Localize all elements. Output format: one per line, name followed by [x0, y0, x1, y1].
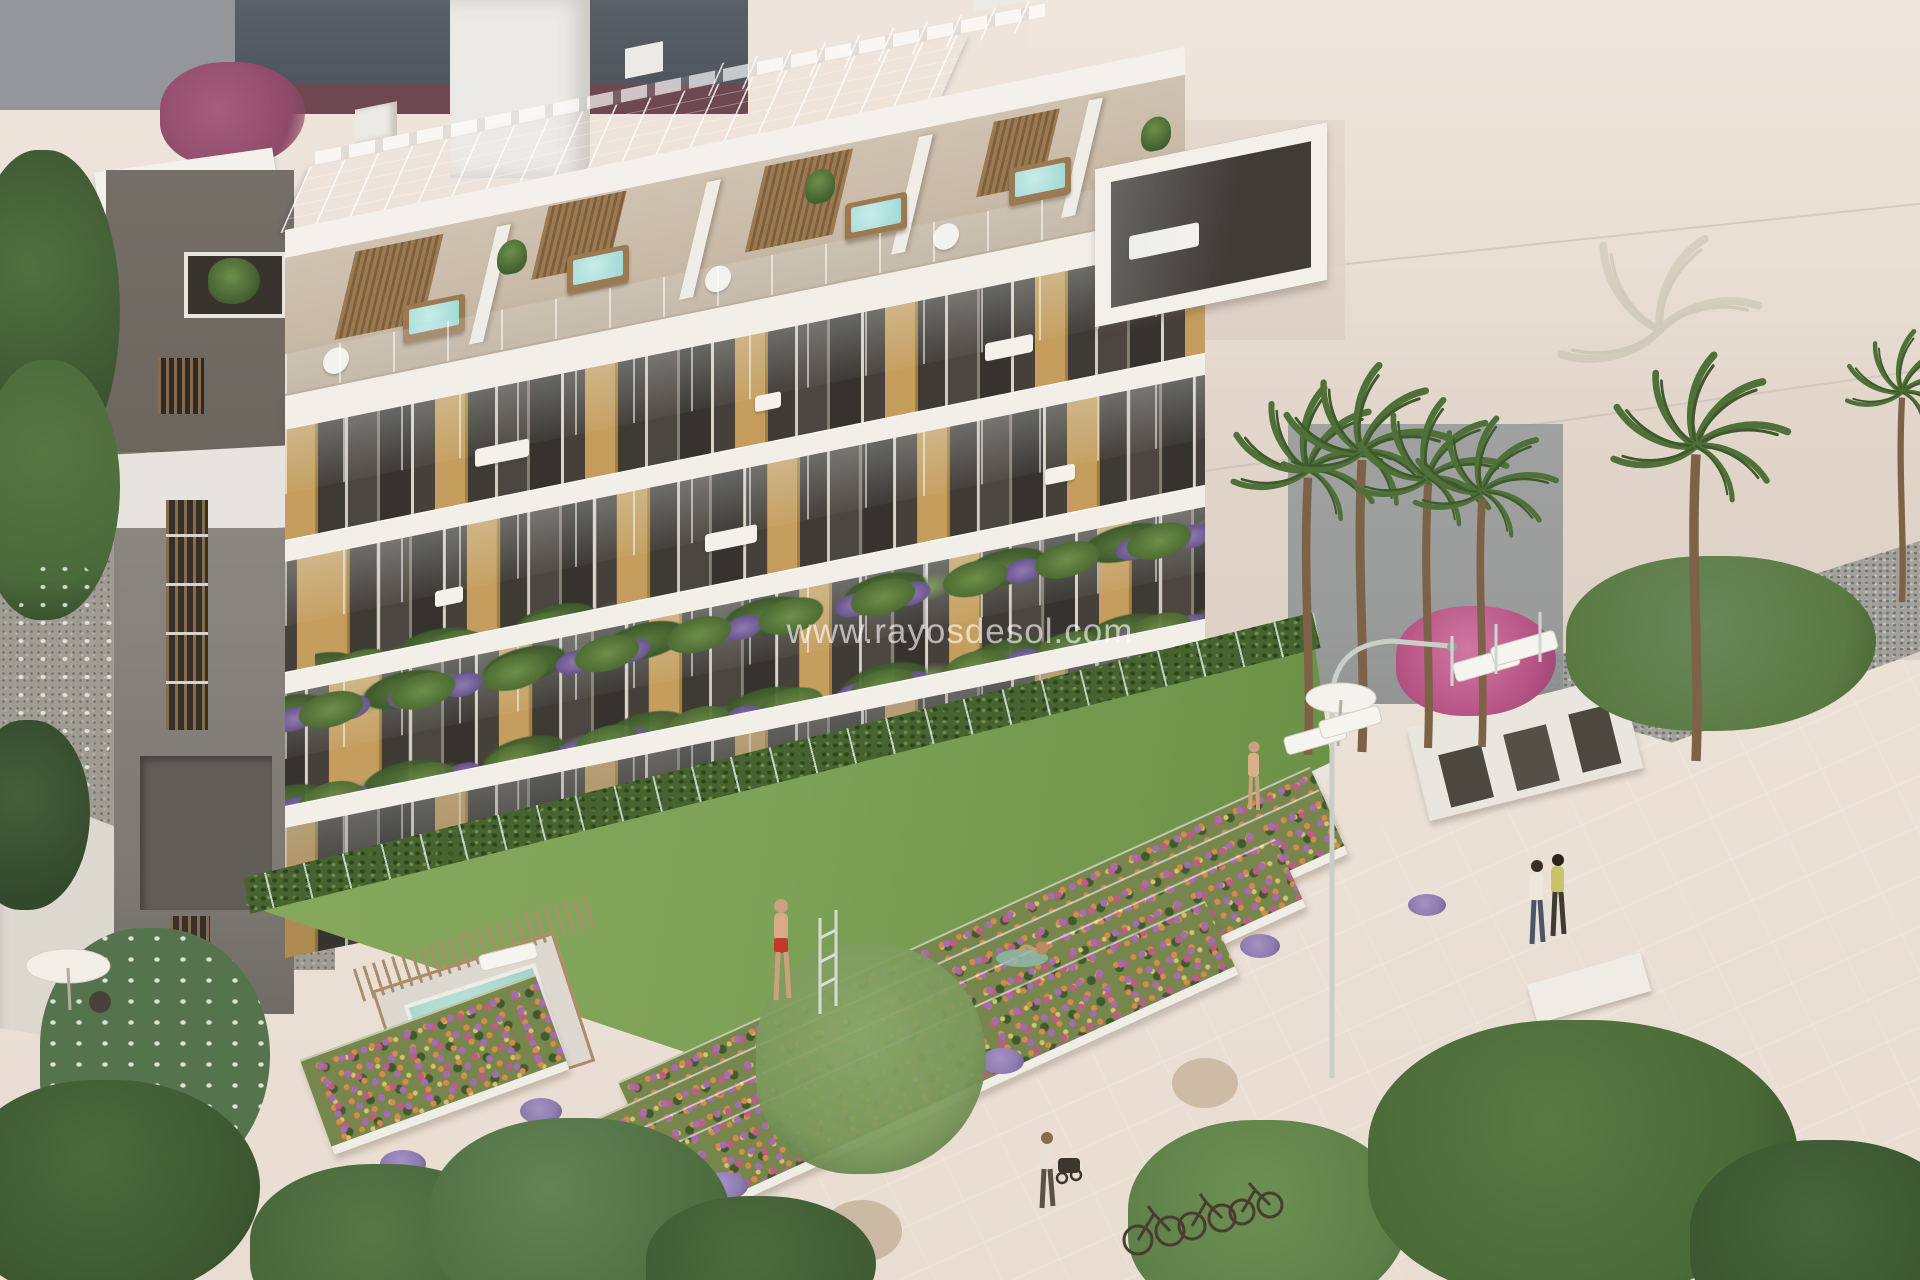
bicycle-rack — [1124, 1183, 1282, 1254]
person-standing-poolside — [1248, 742, 1260, 811]
palm-shadow — [1560, 233, 1759, 365]
umbrella-left-garden — [26, 949, 111, 1013]
couple-walking-promenade — [1530, 854, 1564, 944]
render-canvas: www.rayosdesol.com — [0, 0, 1920, 1280]
person-with-stroller — [1040, 1132, 1081, 1208]
pool-ladder — [820, 910, 836, 1014]
person-swimming — [996, 942, 1049, 968]
palm-tree-corner — [1846, 330, 1920, 602]
palm-tree-tall — [1612, 353, 1788, 761]
sun-loungers — [478, 630, 1559, 972]
watermark-text: www.rayosdesol.com — [0, 612, 1920, 652]
person-walking-lawn — [774, 899, 789, 1000]
